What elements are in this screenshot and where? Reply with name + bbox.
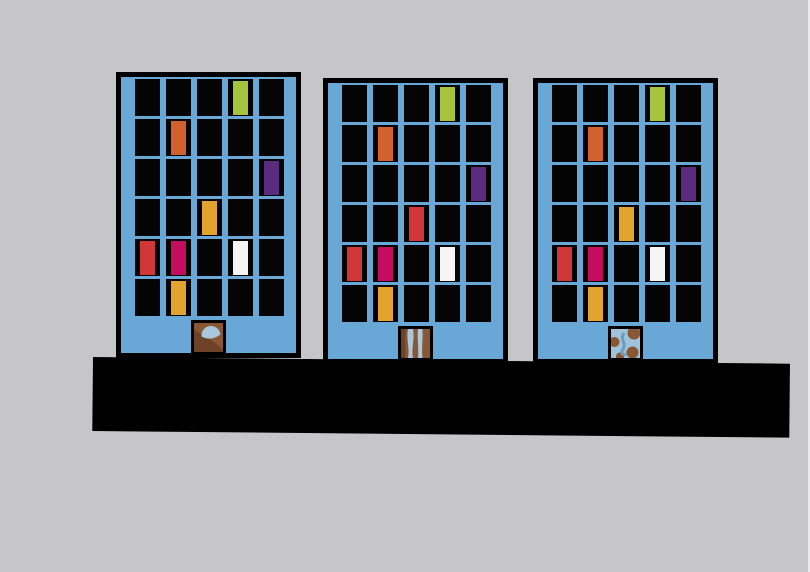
orange-window-pane[interactable]: [171, 121, 186, 155]
building-3-window-r6c4[interactable]: [645, 285, 670, 322]
building-1-window-r2c2[interactable]: [166, 119, 191, 156]
building-3-window-r4c2[interactable]: [583, 205, 608, 242]
building-2-window-r3c4[interactable]: [435, 165, 460, 202]
building-3-window-r5c1[interactable]: [552, 245, 577, 282]
amber-window-pane[interactable]: [378, 287, 393, 321]
building-2-window-r5c2[interactable]: [373, 245, 398, 282]
building-3-window-r5c4[interactable]: [645, 245, 670, 282]
building-3-window-r5c5[interactable]: [676, 245, 701, 282]
building-2-window-r1c4[interactable]: [435, 85, 460, 122]
building-1-window-r3c5[interactable]: [259, 159, 284, 196]
building-1-window-r5c3[interactable]: [197, 239, 222, 276]
building-1-window-r2c4[interactable]: [228, 119, 253, 156]
building-1-window-r3c4[interactable]: [228, 159, 253, 196]
building-1-window-r5c5[interactable]: [259, 239, 284, 276]
building-1[interactable]: [116, 72, 301, 358]
building-3-window-r1c5[interactable]: [676, 85, 701, 122]
red-window-pane[interactable]: [347, 247, 362, 281]
green-window-pane[interactable]: [440, 87, 455, 121]
door-fan-art: [194, 323, 223, 352]
building-3-window-r1c1[interactable]: [552, 85, 577, 122]
building-1-window-r3c3[interactable]: [197, 159, 222, 196]
building-1-window-r5c2[interactable]: [166, 239, 191, 276]
building-2-window-r4c5[interactable]: [466, 205, 491, 242]
building-1-window-r4c4[interactable]: [228, 199, 253, 236]
building-1-window-r1c4[interactable]: [228, 79, 253, 116]
building-3-window-r6c2[interactable]: [583, 285, 608, 322]
building-2-window-grid: [342, 85, 491, 322]
building-2-window-r2c2[interactable]: [373, 125, 398, 162]
building-3-window-r5c3[interactable]: [614, 245, 639, 282]
purple-window-pane[interactable]: [264, 161, 279, 195]
red-window-pane[interactable]: [409, 207, 424, 241]
purple-window-pane[interactable]: [681, 167, 696, 201]
building-2[interactable]: [323, 78, 508, 364]
building-2-window-r2c3[interactable]: [404, 125, 429, 162]
amber-window-pane[interactable]: [202, 201, 217, 235]
building-3-window-r1c3[interactable]: [614, 85, 639, 122]
building-2-window-r5c3[interactable]: [404, 245, 429, 282]
building-1-window-r1c1[interactable]: [135, 79, 160, 116]
building-3-window-r2c2[interactable]: [583, 125, 608, 162]
red-window-pane[interactable]: [140, 241, 155, 275]
building-2-window-r3c3[interactable]: [404, 165, 429, 202]
building-1-window-r4c2[interactable]: [166, 199, 191, 236]
door-stripes-art: [401, 329, 430, 358]
building-1-window-r5c1[interactable]: [135, 239, 160, 276]
building-1-window-r2c3[interactable]: [197, 119, 222, 156]
building-1-window-r2c5[interactable]: [259, 119, 284, 156]
ground-bar: [92, 357, 790, 438]
building-3-window-r4c1[interactable]: [552, 205, 577, 242]
building-3-window-grid: [552, 85, 701, 322]
building-2-window-r2c5[interactable]: [466, 125, 491, 162]
building-3-window-r5c2[interactable]: [583, 245, 608, 282]
building-3-window-r3c2[interactable]: [583, 165, 608, 202]
building-3-window-r4c4[interactable]: [645, 205, 670, 242]
building-3-window-r6c3[interactable]: [614, 285, 639, 322]
amber-window-pane[interactable]: [619, 207, 634, 241]
building-1-window-r1c5[interactable]: [259, 79, 284, 116]
building-1-window-r5c4[interactable]: [228, 239, 253, 276]
building-2-door[interactable]: [398, 326, 433, 361]
building-1-window-r3c1[interactable]: [135, 159, 160, 196]
building-2-window-r3c1[interactable]: [342, 165, 367, 202]
building-3-window-r1c4[interactable]: [645, 85, 670, 122]
building-2-window-r6c2[interactable]: [373, 285, 398, 322]
building-1-window-r6c2[interactable]: [166, 279, 191, 316]
building-2-window-r4c1[interactable]: [342, 205, 367, 242]
building-2-window-r1c1[interactable]: [342, 85, 367, 122]
building-1-window-r4c5[interactable]: [259, 199, 284, 236]
white-window-pane[interactable]: [233, 241, 248, 275]
building-3-window-r3c4[interactable]: [645, 165, 670, 202]
building-2-window-r1c5[interactable]: [466, 85, 491, 122]
scene: [0, 0, 810, 572]
white-window-pane[interactable]: [440, 247, 455, 281]
building-1-window-r1c3[interactable]: [197, 79, 222, 116]
building-1-window-r3c2[interactable]: [166, 159, 191, 196]
building-3-window-r3c1[interactable]: [552, 165, 577, 202]
building-3-window-r3c5[interactable]: [676, 165, 701, 202]
green-window-pane[interactable]: [233, 81, 248, 115]
building-2-window-r1c3[interactable]: [404, 85, 429, 122]
amber-window-pane[interactable]: [588, 287, 603, 321]
building-1-window-r6c4[interactable]: [228, 279, 253, 316]
building-2-window-r5c1[interactable]: [342, 245, 367, 282]
building-1-window-grid: [135, 79, 284, 316]
building-3-door[interactable]: [608, 326, 643, 361]
building-1-window-r1c2[interactable]: [166, 79, 191, 116]
red-window-pane[interactable]: [557, 247, 572, 281]
building-1-door[interactable]: [191, 320, 226, 355]
building-3-window-r6c5[interactable]: [676, 285, 701, 322]
building-3-window-r1c2[interactable]: [583, 85, 608, 122]
building-1-window-r4c3[interactable]: [197, 199, 222, 236]
building-2-window-r5c4[interactable]: [435, 245, 460, 282]
building-3-window-r2c3[interactable]: [614, 125, 639, 162]
building-2-window-r6c3[interactable]: [404, 285, 429, 322]
green-window-pane[interactable]: [650, 87, 665, 121]
magenta-window-pane[interactable]: [588, 247, 603, 281]
building-2-window-r5c5[interactable]: [466, 245, 491, 282]
building-3-window-r4c5[interactable]: [676, 205, 701, 242]
building-2-window-r6c5[interactable]: [466, 285, 491, 322]
building-3-window-r4c3[interactable]: [614, 205, 639, 242]
magenta-window-pane[interactable]: [171, 241, 186, 275]
white-window-pane[interactable]: [650, 247, 665, 281]
door-globe-art: [611, 329, 640, 358]
building-2-window-r4c2[interactable]: [373, 205, 398, 242]
building-3-window-r3c3[interactable]: [614, 165, 639, 202]
building-1-window-r2c1[interactable]: [135, 119, 160, 156]
building-2-window-r2c1[interactable]: [342, 125, 367, 162]
building-1-window-r4c1[interactable]: [135, 199, 160, 236]
building-3[interactable]: [533, 78, 718, 364]
building-3-window-r2c1[interactable]: [552, 125, 577, 162]
orange-window-pane[interactable]: [378, 127, 393, 161]
building-2-window-r4c3[interactable]: [404, 205, 429, 242]
orange-window-pane[interactable]: [588, 127, 603, 161]
building-1-window-r6c1[interactable]: [135, 279, 160, 316]
building-2-window-r2c4[interactable]: [435, 125, 460, 162]
magenta-window-pane[interactable]: [378, 247, 393, 281]
building-1-window-r6c3[interactable]: [197, 279, 222, 316]
building-1-window-r6c5[interactable]: [259, 279, 284, 316]
building-2-window-r1c2[interactable]: [373, 85, 398, 122]
building-3-window-r6c1[interactable]: [552, 285, 577, 322]
building-3-window-r2c4[interactable]: [645, 125, 670, 162]
building-2-window-r3c2[interactable]: [373, 165, 398, 202]
building-2-window-r6c4[interactable]: [435, 285, 460, 322]
building-2-window-r6c1[interactable]: [342, 285, 367, 322]
purple-window-pane[interactable]: [471, 167, 486, 201]
building-2-window-r4c4[interactable]: [435, 205, 460, 242]
amber-window-pane[interactable]: [171, 281, 186, 315]
building-3-window-r2c5[interactable]: [676, 125, 701, 162]
building-2-window-r3c5[interactable]: [466, 165, 491, 202]
